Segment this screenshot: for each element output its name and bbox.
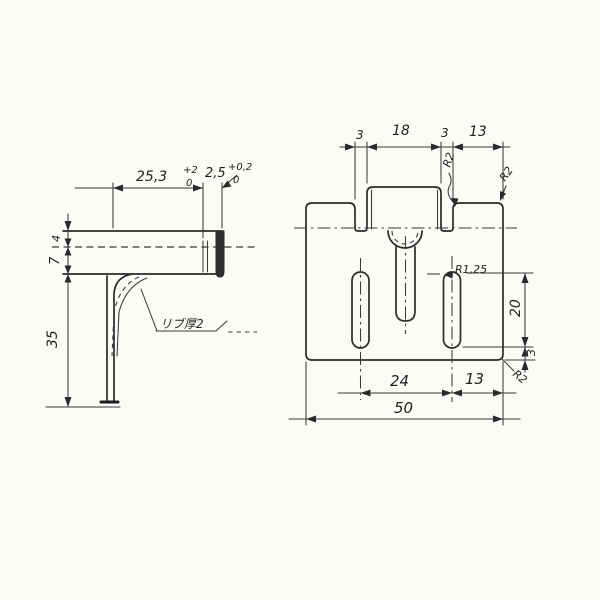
side-view: 25,3 +2 0 2,5 +0,2 0 4 7 35 リブ厚2 (45, 162, 258, 407)
arrowhead (65, 221, 72, 231)
radius-slot-label: R1,25 (455, 263, 487, 276)
dim-overall-width-label: 50 (394, 399, 413, 417)
arrowhead (193, 185, 203, 192)
dim-lip-tol-upper: +0,2 (228, 162, 252, 173)
front-view: 3 18 3 13 R2 R2 R1,25 20 3 R2 (289, 123, 538, 425)
arrowhead (493, 416, 503, 423)
lip-inner-lines (203, 241, 208, 272)
dim-flange-tol-lower: 0 (186, 178, 192, 189)
top-extension-lines (355, 142, 503, 199)
right-extension-lines (463, 273, 535, 360)
rib-profile-line (117, 278, 147, 356)
arrowhead (453, 144, 463, 151)
arrowhead (522, 360, 529, 370)
dim-lip-label: 2,5 (205, 166, 226, 181)
dim-slot-length-label: 20 (508, 299, 524, 317)
dim-mid-tab-label: 18 (392, 123, 410, 139)
arrowhead (65, 274, 72, 283)
leg-right-edge (114, 274, 132, 401)
technical-drawing: 25,3 +2 0 2,5 +0,2 0 4 7 35 リブ厚2 (0, 0, 600, 600)
mid-tab-inner-edges (372, 190, 438, 229)
arrowhead (113, 185, 123, 192)
arrowhead (452, 390, 462, 397)
arrowhead (522, 273, 529, 283)
dim-slot-spacing-label: 24 (390, 372, 409, 390)
end-lip (216, 231, 224, 277)
dim-flange-tol-upper: +2 (183, 165, 198, 176)
arrowhead (442, 390, 452, 397)
dim-gap-right-label: 3 (441, 126, 449, 140)
arrowhead (367, 144, 377, 151)
dim-slot-edge-label: 13 (465, 370, 484, 388)
arrowhead (493, 144, 503, 151)
radius-notch-label: R2 (440, 151, 457, 169)
dim-bottom-margin-label: 3 (525, 349, 538, 356)
arrowhead (345, 144, 355, 151)
dim-right-tab-label: 13 (469, 124, 487, 140)
arrowhead (306, 416, 316, 423)
arrowhead (65, 397, 72, 407)
arrowhead (65, 247, 72, 256)
dim-top-offset-label: 4 (50, 235, 63, 242)
rib-hidden-line (112, 277, 139, 356)
arrowhead (522, 337, 529, 347)
dim-lip-tol-lower: 0 (233, 175, 239, 186)
rib-note-text: リブ厚2 (160, 317, 204, 331)
arrowhead (361, 390, 371, 397)
dim-flange-length-label: 25,3 (136, 169, 167, 185)
arrowhead (431, 144, 441, 151)
arrowhead (65, 266, 72, 275)
r2-corner-leader (502, 359, 514, 371)
dim-flange-height-label: 7 (48, 256, 63, 265)
dim-gap-left-label: 3 (356, 128, 364, 142)
dim-leg-height-label: 35 (45, 330, 61, 348)
r2-notch-leader (448, 173, 453, 202)
arrowhead (65, 239, 72, 248)
rib-note-leader (141, 289, 157, 331)
drawing-sheet: 25,3 +2 0 2,5 +0,2 0 4 7 35 リブ厚2 (0, 0, 600, 600)
top-extension-lines (113, 183, 222, 238)
radius-tab-label: R2 (497, 164, 516, 183)
arrowhead (493, 390, 503, 397)
